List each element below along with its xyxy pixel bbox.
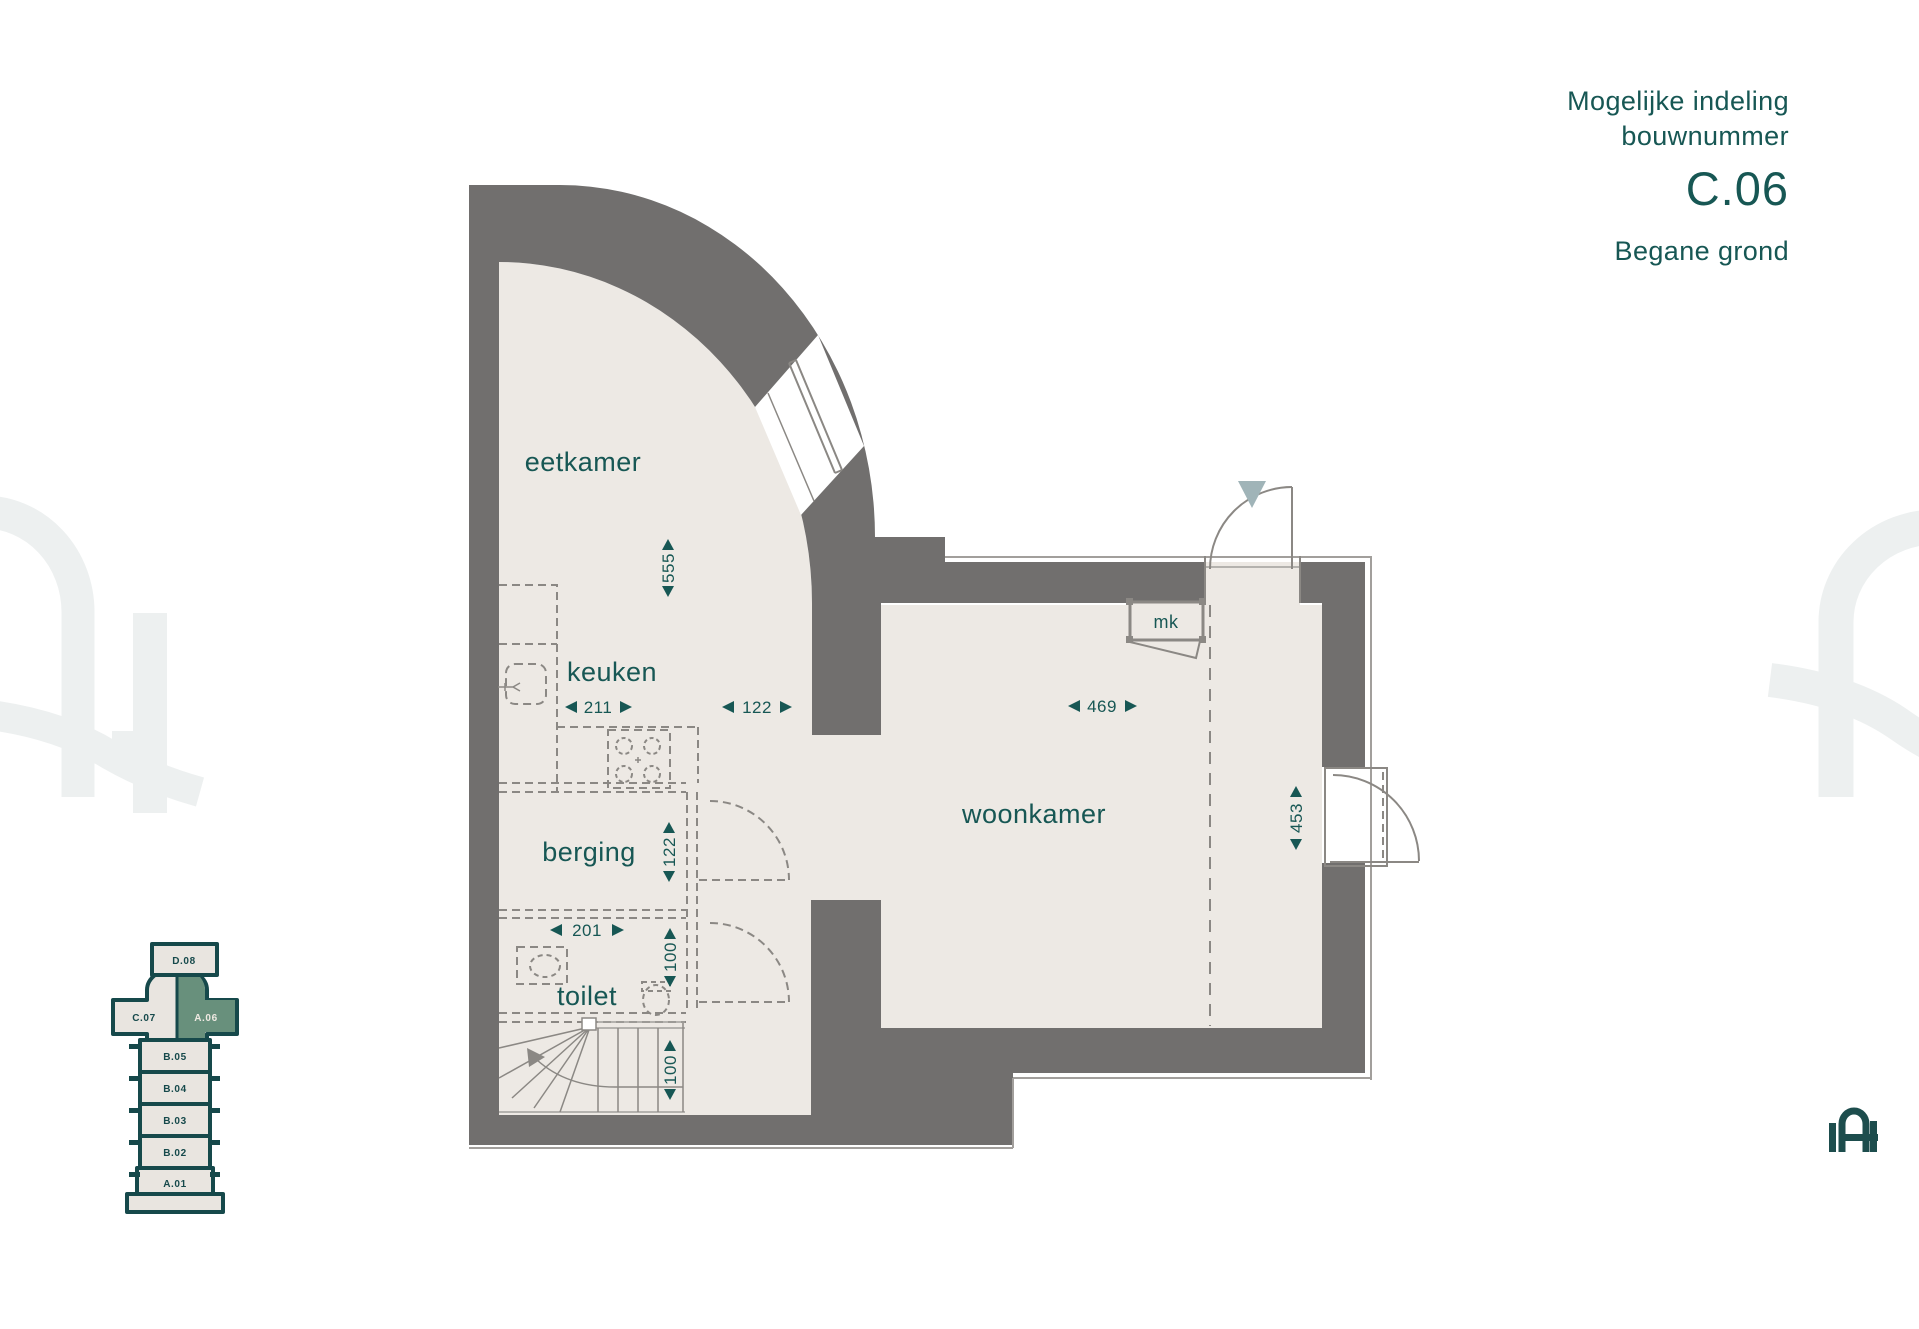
site-unit-a06-fill (177, 967, 235, 1040)
mk-corner (1199, 598, 1206, 605)
dim-stair-width: 100 (661, 1055, 680, 1085)
garden-door-frame (1325, 768, 1387, 866)
stair-newel (582, 1018, 596, 1030)
watermark-left (0, 512, 200, 830)
room-label-mk: mk (1154, 612, 1179, 632)
mk-corner (1126, 598, 1133, 605)
dim-berging-depth: 122 (660, 837, 679, 867)
wall-right-upper (1322, 562, 1365, 767)
site-unit-b05: B.05 (163, 1052, 187, 1063)
dim-keuken-width: 211 (584, 698, 613, 717)
room-label-keuken: keuken (567, 657, 657, 687)
site-unit-a06: A.06 (194, 1013, 218, 1024)
title-block: Mogelijke indeling bouwnummer C.06 Began… (1567, 84, 1789, 267)
site-tick (210, 1172, 220, 1177)
watermark-left-bar (133, 613, 167, 813)
title-floor-name: Begane grond (1567, 236, 1789, 267)
site-unit-b02: B.02 (163, 1148, 187, 1159)
site-unit-b03: B.03 (163, 1116, 187, 1127)
site-tick (210, 1108, 220, 1113)
title-line-2: bouwnummer (1567, 119, 1789, 154)
watermark-left-tab (112, 731, 133, 763)
wall-stem-upper (812, 603, 881, 735)
title-line-1: Mogelijke indeling (1567, 84, 1789, 119)
site-plan: D.08 C.07 A.06 B.05 B.04 B.03 B.02 A.01 (113, 944, 237, 1212)
site-tick (129, 1044, 140, 1049)
mk-corner (1199, 636, 1206, 643)
floor-areas (499, 262, 1322, 1115)
dim-woonkamer-depth: 453 (1287, 803, 1306, 833)
room-label-berging: berging (542, 837, 636, 867)
site-tick (129, 1076, 140, 1081)
logo-arch (1842, 1111, 1866, 1152)
site-unit-d08: D.08 (172, 956, 196, 967)
site-tick (210, 1076, 220, 1081)
site-tick (129, 1108, 140, 1113)
logo-left-bar (1829, 1123, 1836, 1152)
room-label-toilet: toilet (557, 981, 617, 1011)
title-unit-number: C.06 (1567, 164, 1789, 214)
wall-step (875, 537, 945, 603)
site-base (127, 1194, 223, 1212)
site-tick (210, 1140, 220, 1145)
watermark-left-swoosh (0, 712, 200, 792)
wall-bottom-stairs (469, 1115, 811, 1145)
wall-bottom-woonkamer (881, 1028, 1365, 1073)
site-tick (129, 1172, 140, 1177)
floor-entry (1205, 562, 1300, 605)
mk-corner (1126, 636, 1133, 643)
dim-passage-width: 122 (742, 698, 772, 717)
wall-left (469, 185, 499, 1145)
wall-stem-lower (811, 900, 881, 1145)
site-tick (129, 1140, 140, 1145)
dim-toilet-width: 201 (572, 921, 602, 940)
watermark-left-arch (0, 512, 78, 830)
garden-door-arc (1333, 775, 1419, 861)
room-label-eetkamer: eetkamer (525, 447, 642, 477)
dim-toilet-depth: 100 (661, 942, 680, 972)
site-tick (210, 1044, 220, 1049)
page: 555 211 122 469 122 201 100 100 453 (0, 0, 1919, 1329)
floor-passage (811, 735, 882, 900)
wall-bottom-notch (881, 1073, 1013, 1145)
dim-eetkamer-depth: 555 (659, 553, 678, 583)
logo-right-bar (1870, 1121, 1877, 1152)
dim-woonkamer-width: 469 (1087, 697, 1117, 716)
wall-top-a (945, 562, 1205, 603)
brand-logo (1829, 1111, 1878, 1152)
watermark-right (1770, 527, 1919, 797)
site-unit-c07: C.07 (132, 1013, 156, 1024)
watermark-right-arch (1836, 527, 1919, 797)
room-label-woonkamer: woonkamer (961, 799, 1106, 829)
site-unit-a01: A.01 (163, 1179, 187, 1190)
site-unit-b04: B.04 (163, 1084, 187, 1095)
